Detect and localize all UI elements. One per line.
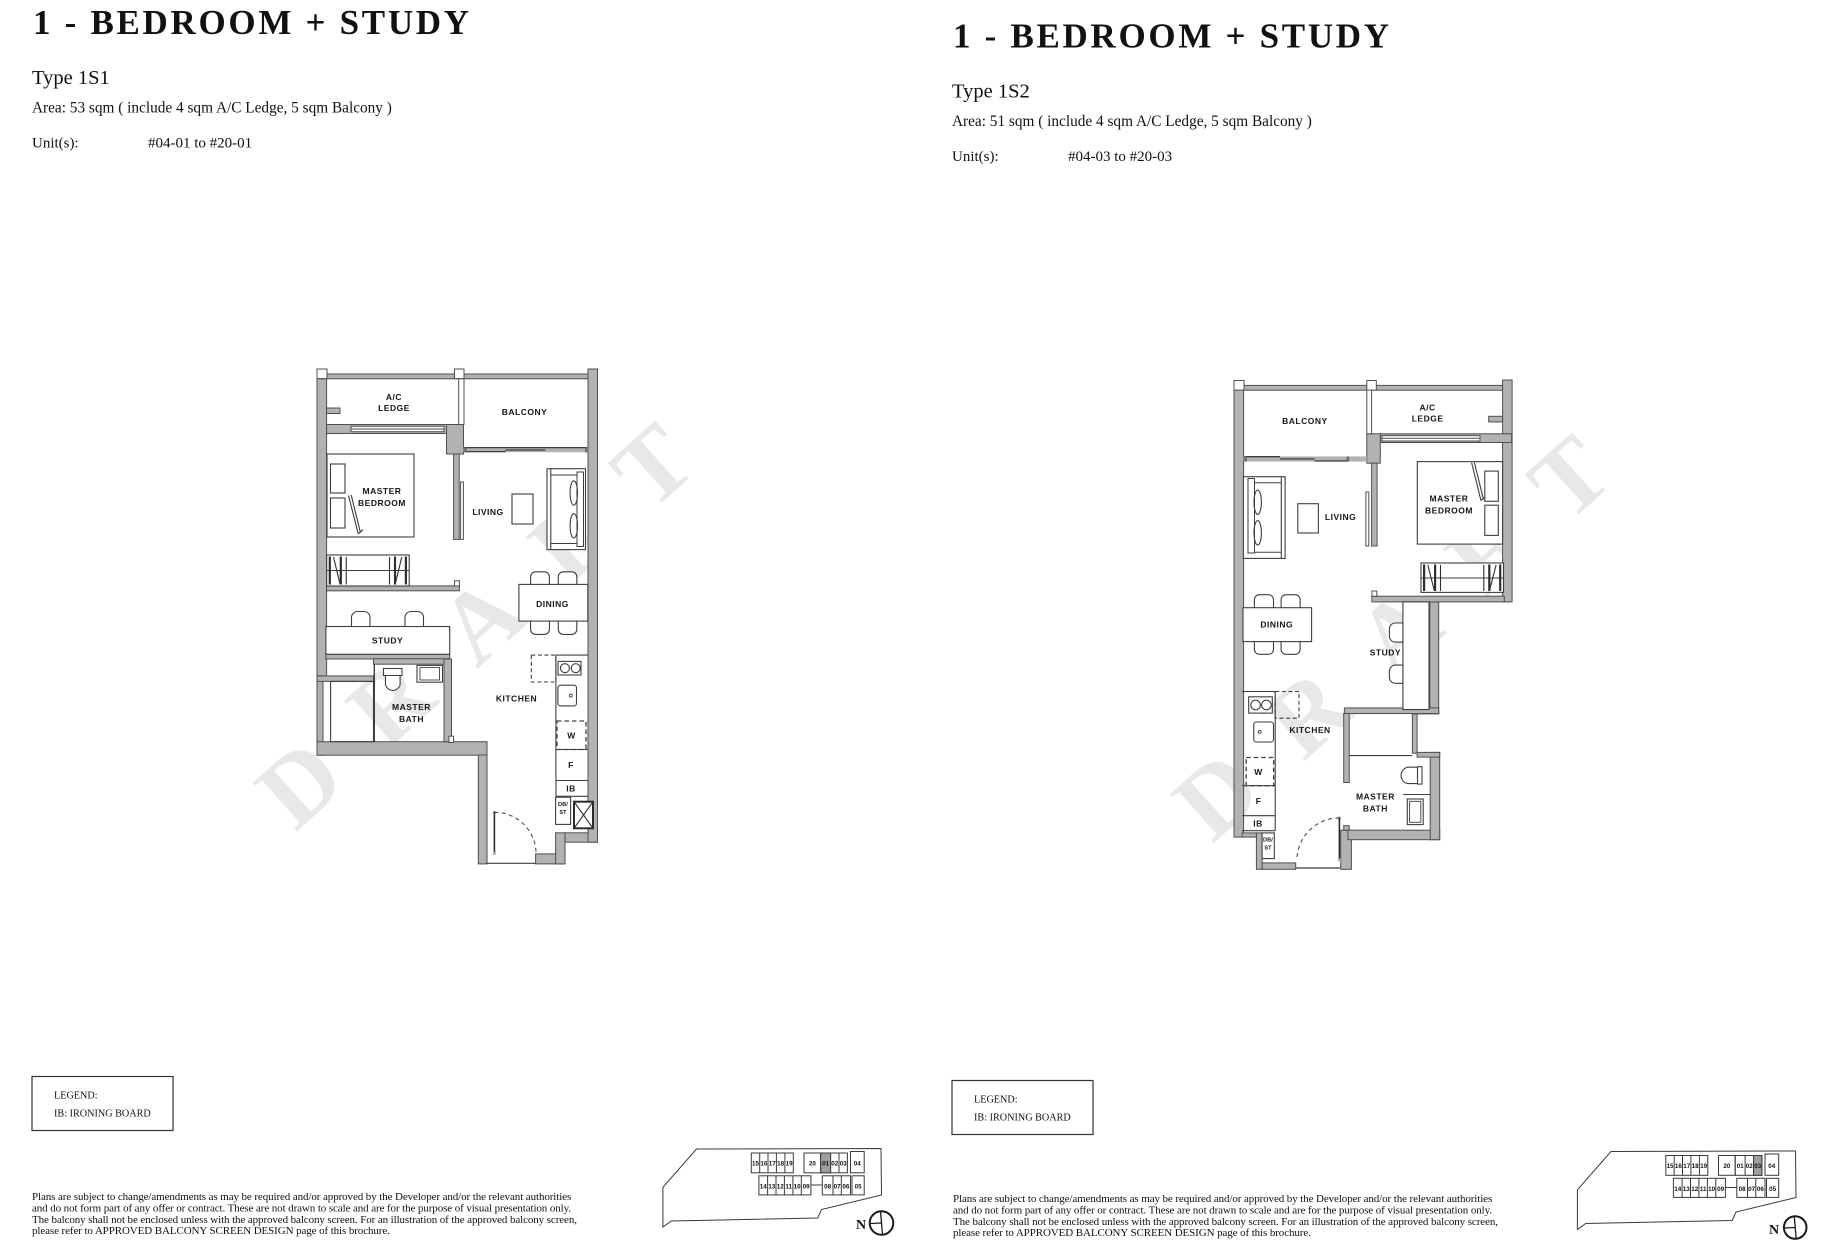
- svg-text:N: N: [1769, 1223, 1779, 1238]
- svg-text:MASTER: MASTER: [392, 702, 431, 712]
- svg-text:18: 18: [777, 1161, 785, 1168]
- svg-text:07: 07: [1748, 1186, 1756, 1193]
- svg-text:MASTER: MASTER: [1430, 494, 1469, 504]
- svg-text:DB/: DB/: [558, 802, 568, 808]
- svg-text:IB: IRONING BOARD: IB: IRONING BOARD: [974, 1113, 1071, 1124]
- svg-text:08: 08: [824, 1184, 832, 1191]
- svg-text:03: 03: [1754, 1163, 1762, 1170]
- svg-text:20: 20: [809, 1161, 817, 1168]
- svg-text:Unit(s):: Unit(s):: [32, 136, 79, 152]
- svg-text:19: 19: [1700, 1163, 1708, 1170]
- svg-text:15: 15: [1666, 1163, 1674, 1170]
- svg-text:IB: IRONING BOARD: IB: IRONING BOARD: [54, 1109, 151, 1120]
- svg-text:STUDY: STUDY: [1370, 647, 1401, 657]
- svg-text:Type 1S1: Type 1S1: [32, 67, 110, 89]
- svg-text:04: 04: [1768, 1163, 1776, 1170]
- svg-text:DB/: DB/: [1263, 838, 1273, 844]
- svg-text:Type 1S2: Type 1S2: [952, 81, 1030, 103]
- svg-text:and do not form part of any of: and do not form part of any offer or con…: [953, 1204, 1492, 1216]
- svg-text:Area: 51 sqm ( include 4 sqm A: Area: 51 sqm ( include 4 sqm A/C Ledge, …: [952, 113, 1312, 130]
- svg-text:please refer to APPROVED BALCO: please refer to APPROVED BALCONY SCREEN …: [953, 1227, 1311, 1239]
- svg-text:The balcony shall not be enclo: The balcony shall not be enclosed unless…: [953, 1216, 1498, 1228]
- svg-text:17: 17: [769, 1161, 777, 1168]
- svg-text:15: 15: [752, 1161, 760, 1168]
- svg-text:02: 02: [1746, 1163, 1754, 1170]
- svg-text:Plans are subject to change/am: Plans are subject to change/amendments a…: [32, 1191, 571, 1203]
- svg-text:MASTER: MASTER: [1356, 792, 1395, 802]
- svg-text:07: 07: [834, 1184, 842, 1191]
- svg-text:N: N: [856, 1218, 866, 1233]
- svg-text:BATH: BATH: [1363, 804, 1388, 814]
- svg-text:20: 20: [1723, 1163, 1731, 1170]
- svg-text:09: 09: [1717, 1186, 1725, 1193]
- svg-text:KITCHEN: KITCHEN: [1289, 725, 1330, 735]
- svg-text:#04-03 to #20-03: #04-03 to #20-03: [1068, 149, 1172, 165]
- svg-text:DINING: DINING: [1260, 619, 1293, 629]
- svg-text:05: 05: [855, 1184, 863, 1191]
- svg-text:LIVING: LIVING: [1325, 512, 1356, 522]
- svg-text:18: 18: [1692, 1163, 1700, 1170]
- svg-text:IB: IB: [566, 784, 576, 794]
- svg-text:BEDROOM: BEDROOM: [358, 498, 406, 508]
- svg-text:W: W: [1254, 767, 1263, 777]
- svg-text:#04-01 to #20-01: #04-01 to #20-01: [148, 136, 252, 152]
- svg-text:LEDGE: LEDGE: [1412, 414, 1444, 424]
- svg-text:ST: ST: [559, 810, 567, 816]
- svg-text:LEGEND:: LEGEND:: [974, 1095, 1018, 1106]
- svg-text:13: 13: [768, 1184, 776, 1191]
- svg-text:W: W: [567, 731, 576, 741]
- svg-text:and do not form part of any of: and do not form part of any offer or con…: [32, 1202, 571, 1214]
- svg-text:LIVING: LIVING: [472, 507, 503, 517]
- svg-text:06: 06: [1757, 1186, 1765, 1193]
- svg-text:BEDROOM: BEDROOM: [1425, 506, 1473, 516]
- svg-text:19: 19: [786, 1161, 794, 1168]
- svg-text:14: 14: [760, 1184, 768, 1191]
- svg-text:16: 16: [760, 1161, 768, 1168]
- svg-text:10: 10: [794, 1184, 802, 1191]
- svg-text:01: 01: [1737, 1163, 1745, 1170]
- svg-text:12: 12: [1691, 1186, 1699, 1193]
- svg-text:1 - BEDROOM + STUDY: 1 - BEDROOM + STUDY: [33, 3, 472, 42]
- svg-text:F: F: [568, 760, 574, 770]
- svg-text:KITCHEN: KITCHEN: [496, 694, 537, 704]
- svg-text:10: 10: [1708, 1186, 1716, 1193]
- svg-text:IB: IB: [1253, 819, 1263, 829]
- svg-text:F: F: [1256, 796, 1262, 806]
- svg-text:08: 08: [1739, 1186, 1747, 1193]
- svg-text:09: 09: [803, 1184, 811, 1191]
- svg-text:The balcony shall not be enclo: The balcony shall not be enclosed unless…: [32, 1214, 577, 1226]
- svg-text:03: 03: [840, 1161, 848, 1168]
- svg-text:Plans are subject to change/am: Plans are subject to change/amendments a…: [953, 1193, 1492, 1205]
- svg-text:BATH: BATH: [399, 714, 424, 724]
- svg-text:BALCONY: BALCONY: [502, 407, 548, 417]
- svg-text:LEGEND:: LEGEND:: [54, 1091, 98, 1102]
- svg-text:1 - BEDROOM + STUDY: 1 - BEDROOM + STUDY: [953, 17, 1392, 56]
- svg-text:Area: 53 sqm ( include 4 sqm A: Area: 53 sqm ( include 4 sqm A/C Ledge, …: [32, 100, 392, 117]
- svg-text:DINING: DINING: [536, 599, 569, 609]
- svg-text:A/C: A/C: [386, 392, 402, 402]
- svg-text:MASTER: MASTER: [363, 486, 402, 496]
- svg-text:16: 16: [1675, 1163, 1683, 1170]
- svg-text:02: 02: [831, 1161, 839, 1168]
- svg-text:please refer to APPROVED BALCO: please refer to APPROVED BALCONY SCREEN …: [32, 1225, 390, 1237]
- svg-text:13: 13: [1683, 1186, 1691, 1193]
- svg-text:04: 04: [854, 1161, 862, 1168]
- svg-text:STUDY: STUDY: [372, 636, 403, 646]
- svg-text:11: 11: [785, 1184, 792, 1191]
- svg-text:BALCONY: BALCONY: [1282, 416, 1328, 426]
- svg-text:11: 11: [1700, 1186, 1707, 1193]
- svg-text:12: 12: [777, 1184, 785, 1191]
- svg-text:01: 01: [822, 1161, 830, 1168]
- svg-text:ST: ST: [1264, 846, 1272, 852]
- svg-text:LEDGE: LEDGE: [378, 403, 410, 413]
- svg-text:05: 05: [1769, 1186, 1777, 1193]
- svg-text:Unit(s):: Unit(s):: [952, 149, 999, 165]
- svg-text:17: 17: [1683, 1163, 1691, 1170]
- svg-text:14: 14: [1674, 1186, 1682, 1193]
- svg-text:A/C: A/C: [1420, 403, 1436, 413]
- svg-text:06: 06: [842, 1184, 850, 1191]
